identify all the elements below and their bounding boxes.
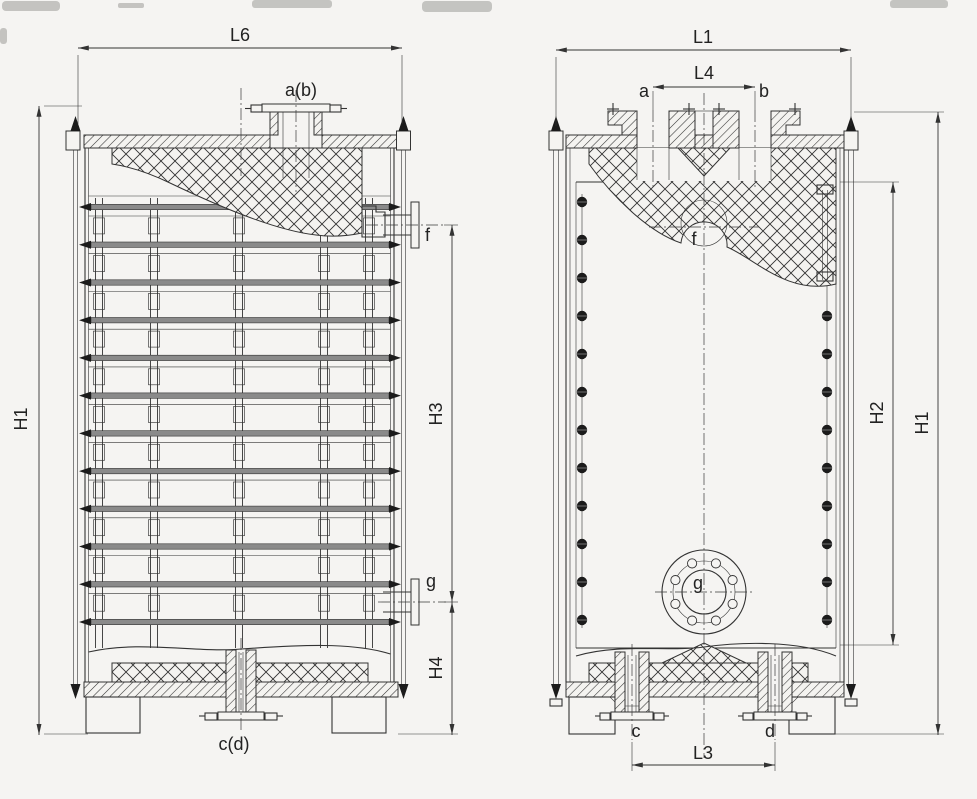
dim-label-L3: L3 xyxy=(693,743,713,763)
dim-label-H4: H4 xyxy=(426,656,446,679)
port-label-a: a xyxy=(639,81,650,101)
technical-drawing: L6 H1 H3 H4 a(b) f g c(d) xyxy=(0,0,977,799)
dim-label-H1-side: H1 xyxy=(912,411,932,434)
port-label-g-front: g xyxy=(426,571,436,591)
dim-label-H1-front: H1 xyxy=(11,407,31,430)
scan-artifacts xyxy=(0,0,948,44)
side-tie-rod-right xyxy=(844,116,858,706)
dim-label-L1: L1 xyxy=(693,27,713,47)
front-view: L6 H1 H3 H4 a(b) f g c(d) xyxy=(11,25,458,754)
dim-label-H3: H3 xyxy=(426,402,446,425)
side-tie-rod-left xyxy=(549,116,563,706)
dim-label-L6: L6 xyxy=(230,25,250,45)
dim-label-H2: H2 xyxy=(867,401,887,424)
side-bottom-lid xyxy=(566,682,615,697)
port-label-f-side: f xyxy=(691,229,697,249)
front-tie-rod-left xyxy=(66,116,81,699)
drawing-sheet: L6 H1 H3 H4 a(b) f g c(d) xyxy=(0,0,977,799)
port-label-g-side: g xyxy=(693,573,703,593)
side-view: L1 L4 L3 H2 H1 a b f g c d xyxy=(549,27,944,771)
dim-label-L4: L4 xyxy=(694,63,714,83)
port-label-c: c xyxy=(632,721,641,741)
side-leg-left xyxy=(569,697,615,734)
front-grid-generated xyxy=(79,198,401,648)
port-label-ab: a(b) xyxy=(285,80,317,100)
port-label-cd: c(d) xyxy=(219,734,250,754)
front-leg-left xyxy=(86,697,140,733)
front-leg-right xyxy=(332,697,386,733)
port-label-d: d xyxy=(765,721,775,741)
front-top-header xyxy=(112,148,385,237)
port-label-f-front: f xyxy=(425,225,431,245)
front-bottom-lid xyxy=(84,682,226,697)
port-label-b: b xyxy=(759,81,769,101)
side-top-lid xyxy=(566,135,844,148)
side-top-header xyxy=(589,148,836,286)
